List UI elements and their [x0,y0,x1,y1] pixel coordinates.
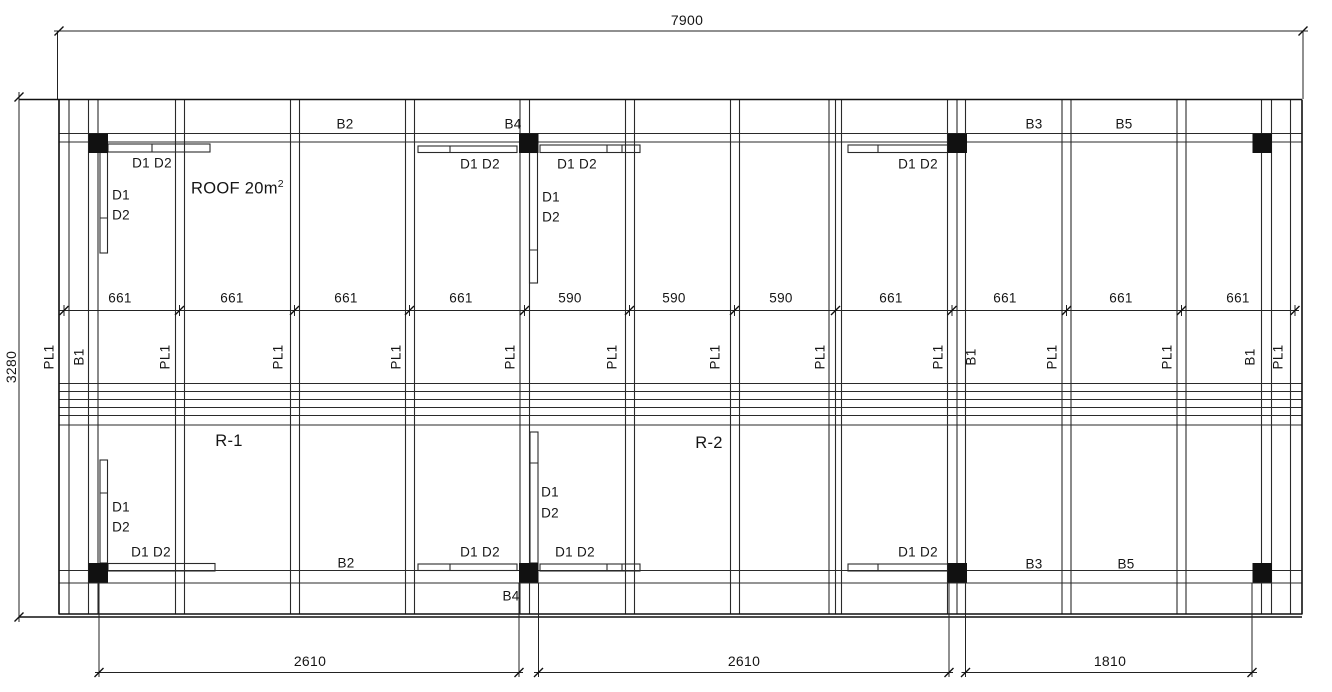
spacing-dim-6: 590 [662,291,685,305]
joist-label-d2-bot-left: D2 [112,520,130,534]
joist-label-d1d2-bot-left: D1 D2 [131,545,171,559]
roof-area-label: ROOF 20m2 [191,178,284,199]
beam-label-b5-top: B5 [1115,117,1132,131]
joist-label-d1-top-left: D1 [112,188,130,202]
spacing-dim-3: 661 [334,291,357,305]
plate-label-13: PL1 [1160,345,1174,370]
plate-label-9: PL1 [813,345,827,370]
beam-label-b4-top: B4 [504,117,521,131]
spacing-dim-10: 661 [1109,291,1132,305]
joist-label-d1d2-top-right: D1 D2 [898,157,938,171]
plate-label-10: PL1 [931,345,945,370]
spacing-dim-2: 661 [220,291,243,305]
room-label-r1: R-1 [215,433,243,450]
spacing-dim-9: 661 [993,291,1016,305]
roof-area-superscript: 2 [278,178,284,190]
joist-label-d1d2-bot-mid-left: D1 D2 [460,545,500,559]
plate-label-7: PL1 [605,345,619,370]
bottom-dim-3: 1810 [1094,654,1126,668]
column-markers [89,134,1273,583]
overall-height-dim: 3280 [4,351,18,383]
plate-label-2: B1 [72,348,86,365]
joist-label-d1d2-top-left: D1 D2 [132,156,172,170]
joist-label-d1d2-top-mid-left: D1 D2 [460,157,500,171]
joist-label-d1d2-bot-right: D1 D2 [898,545,938,559]
spacing-dim-11: 661 [1226,291,1249,305]
plate-label-15: PL1 [1271,345,1285,370]
spacing-dim-1: 661 [108,291,131,305]
joist-label-d1-top-mid: D1 [542,190,560,204]
joist-label-d2-top-left: D2 [112,208,130,222]
joist-label-d2-bot-mid: D2 [541,506,559,520]
joist-label-d2-top-mid: D2 [542,210,560,224]
plate-label-11: B1 [964,348,978,365]
beam-label-b2-bottom: B2 [337,556,354,570]
roof-framing-plan: 7900 3280 661 661 661 661 590 590 590 66… [0,0,1332,692]
roof-area-text: ROOF 20m [191,179,278,197]
spacing-dim-8: 661 [879,291,902,305]
plate-label-4: PL1 [271,345,285,370]
joist-label-d1-bot-left: D1 [112,500,130,514]
joist-label-d1-bot-mid: D1 [541,485,559,499]
beam-label-b2-top: B2 [336,117,353,131]
plan-linework [0,0,1332,692]
plate-label-8: PL1 [708,345,722,370]
dimension-slash-ticks [15,27,1308,678]
joist-label-d1d2-top-mid-right: D1 D2 [557,157,597,171]
plate-label-12: PL1 [1045,345,1059,370]
joist-label-d1d2-bot-mid-right: D1 D2 [555,545,595,559]
stud-lines [59,99,1291,614]
beam-label-b3-bottom: B3 [1025,557,1042,571]
spacing-dim-7: 590 [769,291,792,305]
plate-label-1: PL1 [42,345,56,370]
beam-label-b3-top: B3 [1025,117,1042,131]
plate-label-5: PL1 [389,345,403,370]
spacing-dim-5: 590 [558,291,581,305]
bottom-dim-1: 2610 [294,654,326,668]
bottom-dim-2: 2610 [728,654,760,668]
overall-width-dim: 7900 [671,13,703,27]
plate-label-14: B1 [1243,348,1257,365]
beam-lines [59,134,1302,584]
room-label-r2: R-2 [695,435,723,452]
plate-label-6: PL1 [503,345,517,370]
spacing-dim-4: 661 [449,291,472,305]
plate-label-3: PL1 [158,345,172,370]
beam-label-b5-bottom: B5 [1117,557,1134,571]
beam-label-b4-bottom: B4 [502,589,519,603]
